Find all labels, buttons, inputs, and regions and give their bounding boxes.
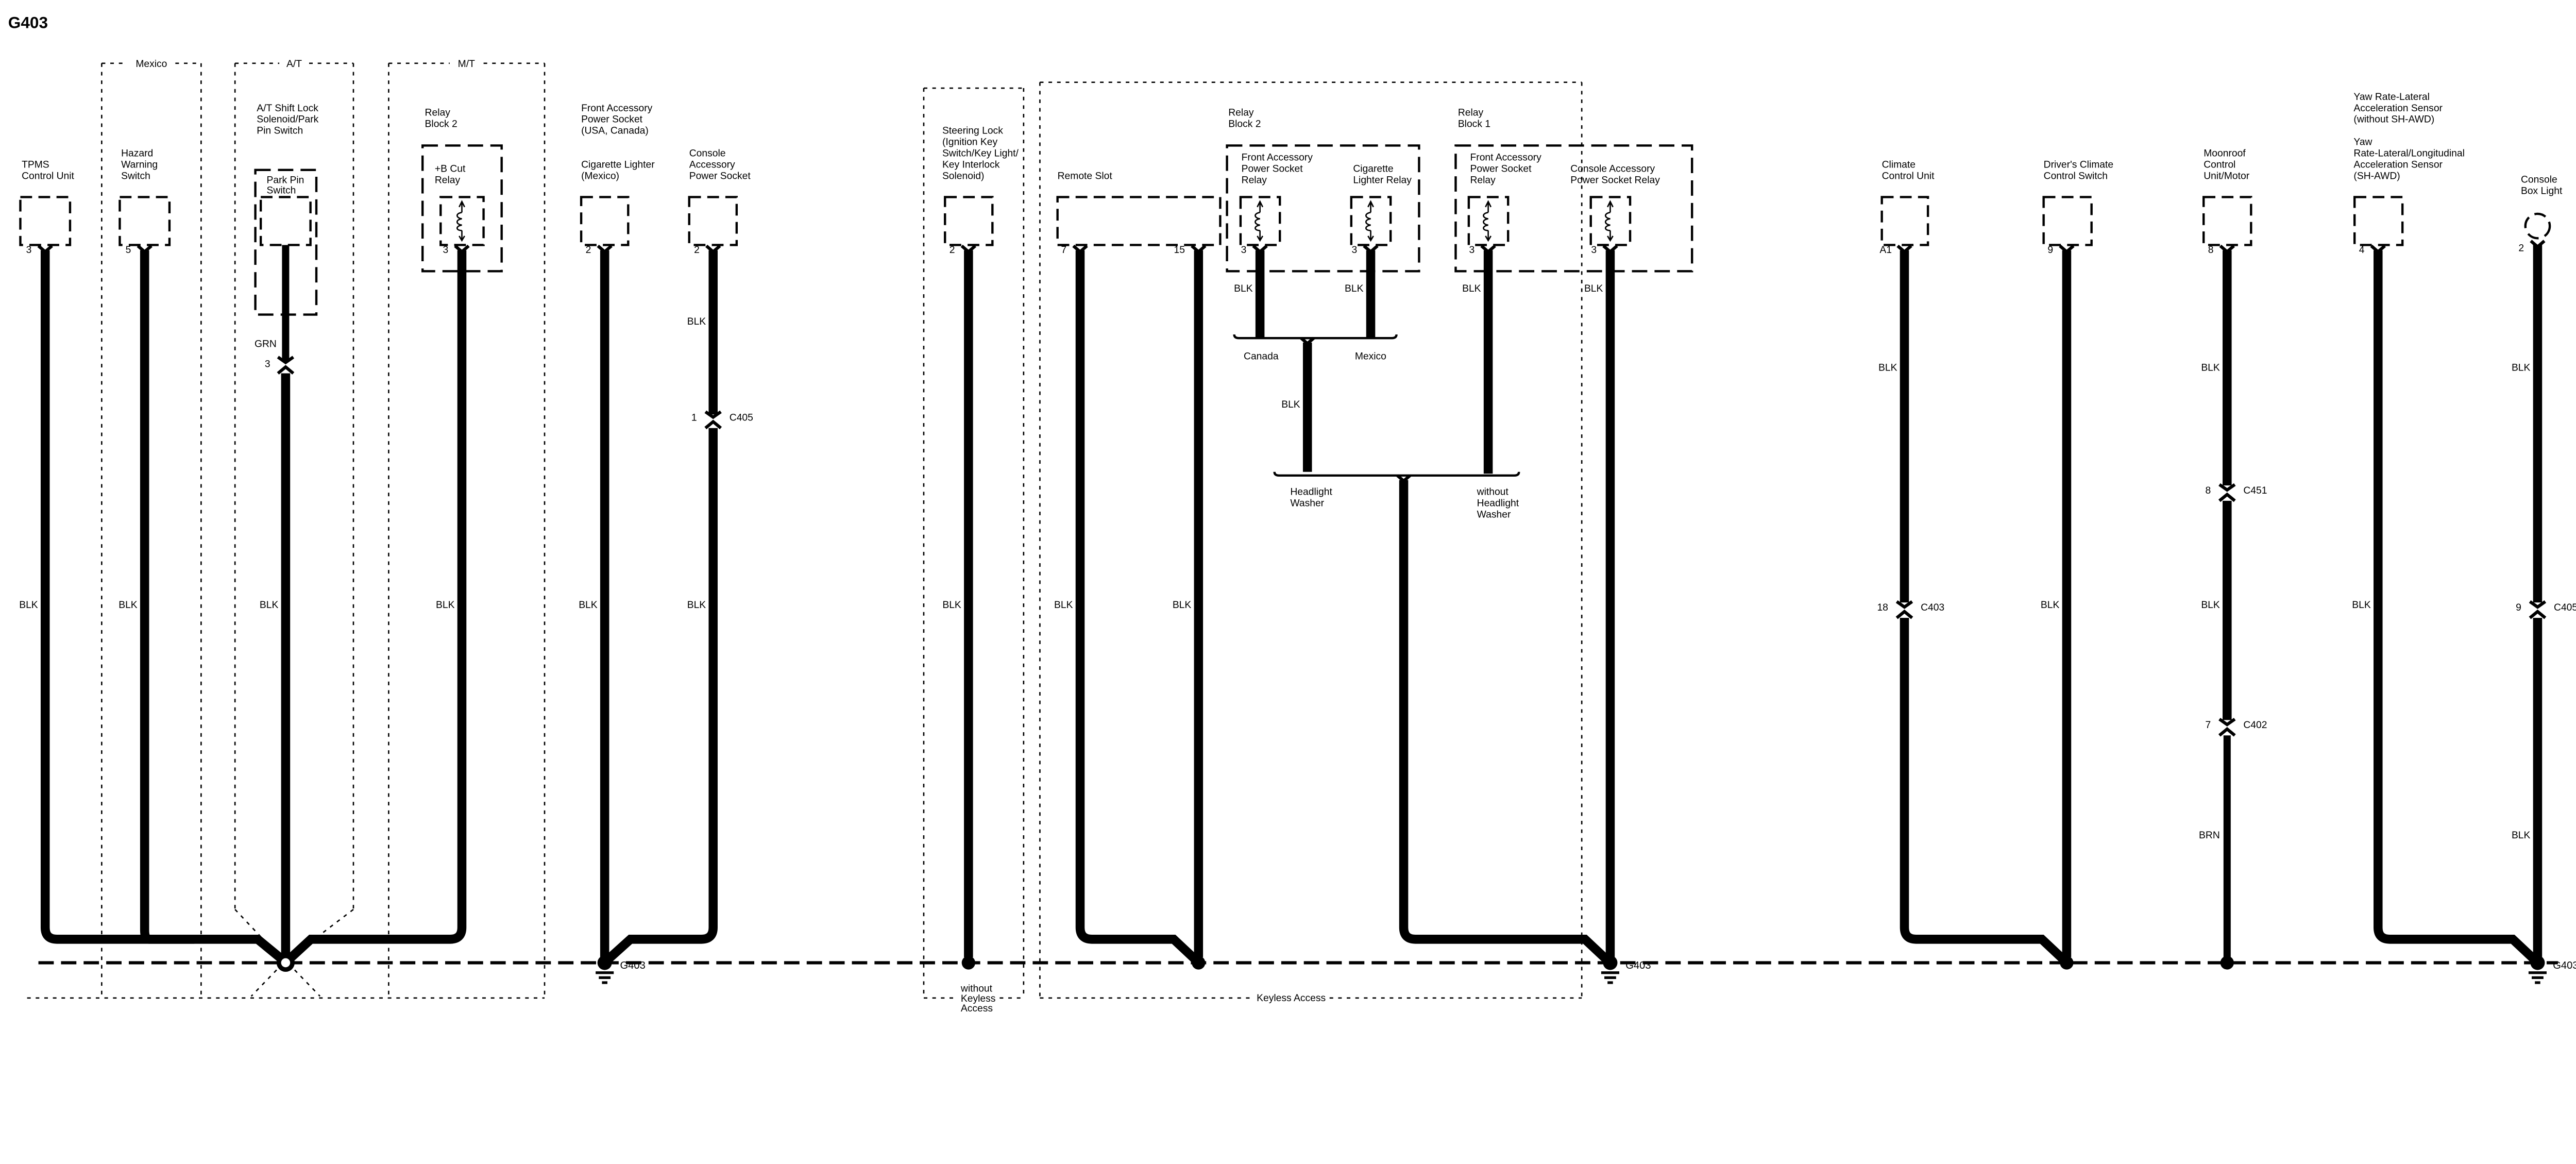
remote-slot-connector-box	[1058, 197, 1221, 245]
rb2-relay1-label-3: Relay	[1242, 175, 1267, 185]
console-socket-label-3: Power Socket	[689, 171, 751, 181]
console-socket-conn-label: C405	[730, 413, 753, 424]
rb1-relay1-label-3: Relay	[1470, 175, 1496, 185]
branch-label-wohw-3: Washer	[1477, 509, 1511, 520]
console-socket-label-1: Console	[689, 148, 726, 159]
yaw-wire	[2378, 250, 2535, 960]
option-box-keyless: Keyless Access	[1040, 82, 1582, 1004]
moonroof-wire1-color: BLK	[2201, 362, 2220, 373]
rb1-relay2-label-1: Console Accessory	[1570, 163, 1655, 174]
yaw-connector-box	[2354, 197, 2402, 245]
component-relay-block1: Relay Block 1 Front Accessory Power Sock…	[1455, 108, 1692, 957]
rb2-relay2-coil	[1366, 212, 1370, 230]
hazard-wire	[145, 250, 194, 939]
option-label-keyless: Keyless Access	[1257, 993, 1326, 1004]
climate-conn-label: C403	[1921, 602, 1944, 613]
tpms-label-1: TPMS	[22, 159, 49, 170]
ground-junctions: G403 G403 G403	[279, 955, 2576, 983]
component-tpms: TPMS Control Unit 3 BLK	[19, 159, 283, 960]
remote-slot-wire2-color: BLK	[1173, 600, 1192, 611]
yaw-label2-1: Yaw	[2353, 137, 2372, 148]
drivers-pin: 9	[2047, 245, 2053, 256]
drivers-label-2: Control Switch	[2044, 171, 2108, 181]
branch-label-hw-2: Washer	[1290, 498, 1324, 509]
component-moonroof: Moonroof Control Unit/Motor 8 BLK 8 C451…	[2199, 148, 2267, 957]
rb2mt-label-1: Relay	[425, 108, 451, 119]
yaw-label2-3: Acceleration Sensor	[2353, 159, 2443, 170]
yaw-label-3: (without SH-AWD)	[2353, 114, 2434, 125]
hazard-connector-box	[120, 197, 169, 245]
rb1-relay1-wire-color: BLK	[1462, 283, 1481, 294]
ground-dot-1	[598, 955, 612, 970]
console-socket-pin: 2	[694, 245, 700, 256]
park-pin-wire-color: GRN	[255, 339, 277, 350]
moonroof-conn2-label: C402	[2243, 720, 2267, 731]
console-light-wire1-color: BLK	[2512, 362, 2531, 373]
rb2-relay1-wire-color: BLK	[1234, 283, 1253, 294]
climate-label-2: Control Unit	[1882, 171, 1935, 181]
component-console-socket: Console Accessory Power Socket 2 BLK 1 C…	[607, 148, 753, 960]
component-yaw-sensor: Yaw Rate-Lateral Acceleration Sensor (wi…	[2352, 92, 2535, 960]
tpms-wire-color: BLK	[19, 600, 38, 611]
yaw-label-2: Acceleration Sensor	[2353, 103, 2443, 114]
bcut-pin: 3	[443, 245, 448, 256]
option-box-without-keyless: without Keyless Access	[924, 88, 1024, 1014]
rb1-relay2-label-2: Power Socket Relay	[1570, 175, 1660, 185]
console-socket-wire2-color: BLK	[687, 600, 706, 611]
rb1-relay2-coil-arrow	[1607, 201, 1613, 240]
ground-dot-2	[1603, 955, 1617, 970]
bcut-label-1: +B Cut	[435, 163, 466, 174]
option-box-at: A/T	[235, 59, 353, 997]
moonroof-inline-connector-1	[2219, 484, 2235, 501]
steering-connector-box	[945, 197, 992, 245]
moonroof-pin: 8	[2208, 245, 2214, 256]
headlight-washer-merged-wire	[1404, 480, 1607, 960]
branch-label-wohw-1: without	[1477, 487, 1509, 498]
component-remote-slot: Remote Slot 7 15 BLK BLK	[1054, 171, 1220, 960]
option-label-without-keyless-2: Keyless	[961, 993, 996, 1004]
shift-lock-wire-color: BLK	[260, 600, 279, 611]
console-light-label-2: Box Light	[2521, 185, 2563, 196]
moonroof-conn1-label: C451	[2243, 485, 2267, 496]
rb1-relay2-pin: 3	[1591, 245, 1597, 256]
park-pin-pin: 3	[265, 359, 270, 369]
rb2-relay1-label-1: Front Accessory	[1242, 152, 1313, 163]
tpms-label-2: Control Unit	[22, 171, 74, 181]
front-socket-label-2: Power Socket	[581, 114, 643, 125]
yaw-wire-color: BLK	[2352, 600, 2371, 611]
rb1-relay2-coil	[1605, 212, 1610, 230]
option-box-mexico: Mexico	[101, 59, 201, 998]
front-socket-wire-color: BLK	[579, 600, 598, 611]
ground-distribution-diagram: G403 Mexico A/T M/T without Keyless Acce…	[0, 0, 2576, 1021]
front-socket-label2-1: Cigarette Lighter	[581, 159, 655, 170]
console-socket-wire-lower	[607, 428, 713, 960]
ground-point-1: G403	[596, 955, 646, 983]
rb2-relay1-label-2: Power Socket	[1242, 163, 1303, 174]
rb2-relay2-label-1: Cigarette	[1353, 163, 1393, 174]
rb1-label-1: Relay	[1458, 108, 1484, 119]
climate-wire-lower	[1904, 618, 2064, 960]
console-socket-connector-box	[689, 197, 737, 245]
climate-conn-pin: 18	[1877, 602, 1888, 613]
rb2-relay2-pin: 3	[1351, 245, 1357, 256]
earth-symbol-1	[596, 973, 614, 983]
climate-wire1-color: BLK	[1878, 362, 1897, 373]
headlight-washer-branch-bar	[1275, 472, 1519, 476]
console-light-conn-pin: 9	[2516, 602, 2521, 613]
bcut-coil	[457, 212, 462, 230]
moonroof-conn1-pin: 8	[2205, 485, 2211, 496]
rb1-relay1-pin: 3	[1469, 245, 1475, 256]
component-steering-lock: Steering Lock (Ignition Key Switch/Key L…	[942, 126, 1019, 957]
ground-label-2: G403	[1625, 960, 1651, 971]
moonroof-wire2-color: BLK	[2201, 600, 2220, 611]
tpms-pin: 3	[26, 245, 32, 256]
moonroof-label-1: Moonroof	[2204, 148, 2246, 159]
front-socket-pin: 2	[586, 245, 591, 256]
climate-pin: A1	[1879, 245, 1892, 256]
rb2-relay2-wire-color: BLK	[1345, 283, 1364, 294]
steering-label-3: Switch/Key Light/	[942, 148, 1019, 159]
option-label-without-keyless-1: without	[960, 984, 993, 994]
moonroof-label-3: Unit/Motor	[2204, 171, 2250, 181]
rb1-label-2: Block 1	[1458, 119, 1490, 129]
component-drivers-climate: Driver's Climate Control Switch 9 BLK	[2041, 159, 2113, 957]
climate-label-1: Climate	[1882, 159, 1916, 170]
hazard-pin: 5	[126, 245, 131, 256]
park-pin-connector-box	[261, 197, 310, 245]
page-title: G403	[8, 13, 48, 31]
rb1-relay1-label-1: Front Accessory	[1470, 152, 1542, 163]
ground-junction-left	[279, 956, 292, 969]
steering-wire-color: BLK	[942, 600, 961, 611]
steering-label-2: (Ignition Key	[942, 137, 998, 148]
remote-slot-wire1-color: BLK	[1054, 600, 1073, 611]
front-socket-label2-2: (Mexico)	[581, 171, 619, 181]
remote-slot-label: Remote Slot	[1058, 171, 1113, 181]
component-console-light: Console Box Light 2 BLK 9 C405 BLK	[2512, 174, 2576, 957]
console-light-label-1: Console	[2521, 174, 2557, 185]
yaw-label2-4: (SH-AWD)	[2353, 171, 2400, 181]
rb2-relay1-coil	[1255, 212, 1260, 230]
component-front-socket: Front Accessory Power Socket (USA, Canad…	[579, 103, 655, 957]
steering-label-1: Steering Lock	[942, 126, 1003, 137]
branch-label-wohw-2: Headlight	[1477, 498, 1519, 509]
climate-connector-box	[1882, 197, 1928, 245]
yaw-pin: 4	[2359, 245, 2365, 256]
tpms-connector-box	[20, 197, 70, 245]
rb2-relay1-pin: 3	[1241, 245, 1247, 256]
console-light-inline-connector	[2530, 602, 2546, 618]
component-hazard: Hazard Warning Switch 5 BLK	[118, 148, 194, 939]
front-socket-label-1: Front Accessory	[581, 103, 653, 114]
component-climate: Climate Control Unit A1 BLK 18 C403	[1877, 159, 2064, 960]
rb2-relay1-coil-arrow	[1257, 201, 1263, 240]
hazard-wire-color: BLK	[118, 600, 138, 611]
option-box-mt: M/T	[388, 59, 545, 998]
rb1-relay1-label-2: Power Socket	[1470, 163, 1532, 174]
option-label-at: A/T	[286, 59, 302, 70]
console-socket-label-2: Accessory	[689, 159, 735, 170]
shift-lock-label-2: Solenoid/Park	[257, 114, 318, 125]
console-light-bulb	[2526, 214, 2550, 238]
option-label-mexico: Mexico	[135, 59, 167, 70]
rb1-relay2-wire-color: BLK	[1584, 283, 1603, 294]
ground-label-1: G403	[620, 960, 646, 971]
ground-label-3: G403	[2553, 960, 2576, 971]
bcut-wire-color: BLK	[436, 600, 455, 611]
ground-junction-moonroof	[2221, 956, 2234, 969]
moonroof-connector-box	[2204, 197, 2251, 245]
drivers-label-1: Driver's Climate	[2044, 159, 2113, 170]
yaw-label-1: Yaw Rate-Lateral	[2353, 92, 2430, 103]
console-light-pin: 2	[2518, 243, 2524, 254]
branch-label-hw-1: Headlight	[1290, 487, 1332, 498]
bcut-coil-arrow	[459, 201, 465, 240]
moonroof-conn2-pin: 7	[2205, 720, 2211, 731]
moonroof-label-2: Control	[2204, 159, 2235, 170]
rb1-relay1-coil-arrow	[1485, 201, 1491, 240]
earth-symbol-3	[2529, 973, 2547, 983]
rb2mt-label-2: Block 2	[425, 119, 457, 129]
component-relay-block2-mt: Relay Block 2 +B Cut Relay 3 BLK	[289, 108, 502, 960]
component-relay-block2: Relay Block 2 Front Accessory Power Sock…	[1227, 108, 1607, 960]
console-light-wire2-color: BLK	[2512, 830, 2531, 841]
option-label-without-keyless-3: Access	[961, 1003, 993, 1014]
rb2-relay2-label-2: Lighter Relay	[1353, 175, 1412, 185]
park-pin-label-1: Park Pin	[267, 175, 304, 185]
front-socket-connector-box	[581, 197, 628, 245]
rb2-label-1: Relay	[1228, 108, 1254, 119]
tpms-wire	[45, 250, 283, 960]
rb1-relay1-coil	[1483, 212, 1488, 230]
console-socket-conn-pin: 1	[691, 413, 697, 424]
ground-junction-remote	[1192, 956, 1205, 969]
drivers-wire-color: BLK	[2041, 600, 2060, 611]
ground-dot-3	[2530, 955, 2545, 970]
branch-label-canada: Canada	[1244, 351, 1279, 362]
ground-point-2: G403	[1601, 955, 1651, 983]
console-light-conn-label: C405	[2554, 602, 2576, 613]
earth-symbol-2	[1601, 973, 1619, 983]
drivers-connector-box	[2044, 197, 2092, 245]
branch-label-mexico: Mexico	[1355, 351, 1386, 362]
rb2-label-2: Block 2	[1228, 119, 1261, 129]
front-socket-label-3: (USA, Canada)	[581, 126, 649, 137]
climate-inline-connector	[1897, 602, 1912, 618]
hazard-label-3: Switch	[121, 171, 150, 181]
park-pin-label-2: Switch	[267, 185, 296, 196]
console-socket-wire1-color: BLK	[687, 316, 706, 327]
remote-slot-pin-1: 7	[1061, 245, 1066, 256]
moonroof-wire3-color: BRN	[2199, 830, 2220, 841]
shift-lock-label-1: A/T Shift Lock	[257, 103, 318, 114]
option-label-mt: M/T	[458, 59, 475, 70]
shift-lock-label-3: Pin Switch	[257, 126, 303, 137]
moonroof-inline-connector-2	[2219, 719, 2235, 736]
bcut-label-2: Relay	[435, 175, 461, 185]
component-shift-lock: A/T Shift Lock Solenoid/Park Pin Switch …	[255, 103, 319, 957]
hazard-label-1: Hazard	[121, 148, 153, 159]
steering-label-4: Key Interlock	[942, 159, 1000, 170]
yaw-label2-2: Rate-Lateral/Longitudinal	[2353, 148, 2464, 159]
remote-slot-pin-2: 15	[1174, 245, 1185, 256]
merged-branch-wire-color: BLK	[1281, 399, 1300, 410]
ground-point-3: G403	[2529, 955, 2576, 983]
steering-label-5: Solenoid)	[942, 171, 984, 181]
steering-pin: 2	[950, 245, 955, 256]
ground-junction-steering	[962, 956, 975, 969]
rb2-relay2-coil-arrow	[1368, 201, 1374, 240]
ground-junction-climate	[2060, 956, 2073, 969]
hazard-label-2: Warning	[121, 159, 158, 170]
